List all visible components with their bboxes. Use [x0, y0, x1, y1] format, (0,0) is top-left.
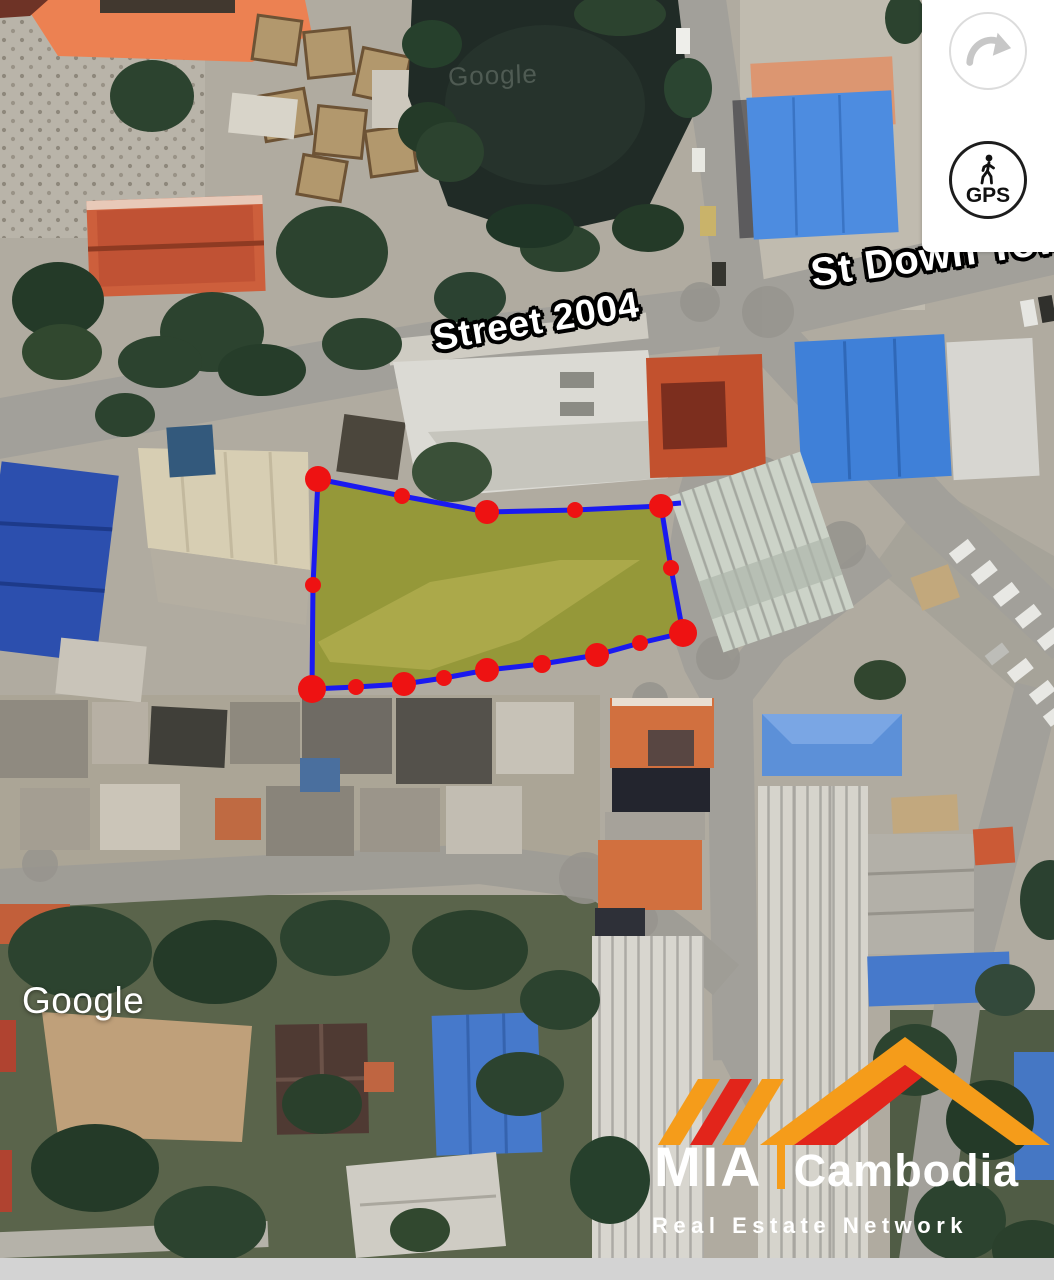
footer-bar: [0, 1258, 1054, 1280]
logo-tagline: Real Estate Network: [652, 1213, 968, 1239]
logo-brand: MIA: [654, 1144, 763, 1190]
gps-button[interactable]: GPS: [949, 141, 1027, 219]
rotate-button[interactable]: [949, 12, 1027, 90]
google-watermark: Google: [22, 980, 144, 1022]
gps-button-label: GPS: [966, 185, 1010, 206]
logo-text-row: MIA Cambodia: [654, 1141, 1019, 1190]
mia-cambodia-logo: MIA Cambodia Real Estate Network: [640, 1035, 1054, 1250]
walking-person-icon: [974, 154, 1002, 185]
map-viewport[interactable]: Google Street 2004 St Down Tow Google: [0, 0, 1054, 1280]
curved-arrow-icon: [963, 29, 1013, 73]
map-controls-panel: GPS: [922, 0, 1054, 252]
logo-region: Cambodia: [794, 1153, 1020, 1190]
logo-roof-graphic: [640, 1035, 1054, 1147]
logo-divider: [777, 1141, 785, 1189]
